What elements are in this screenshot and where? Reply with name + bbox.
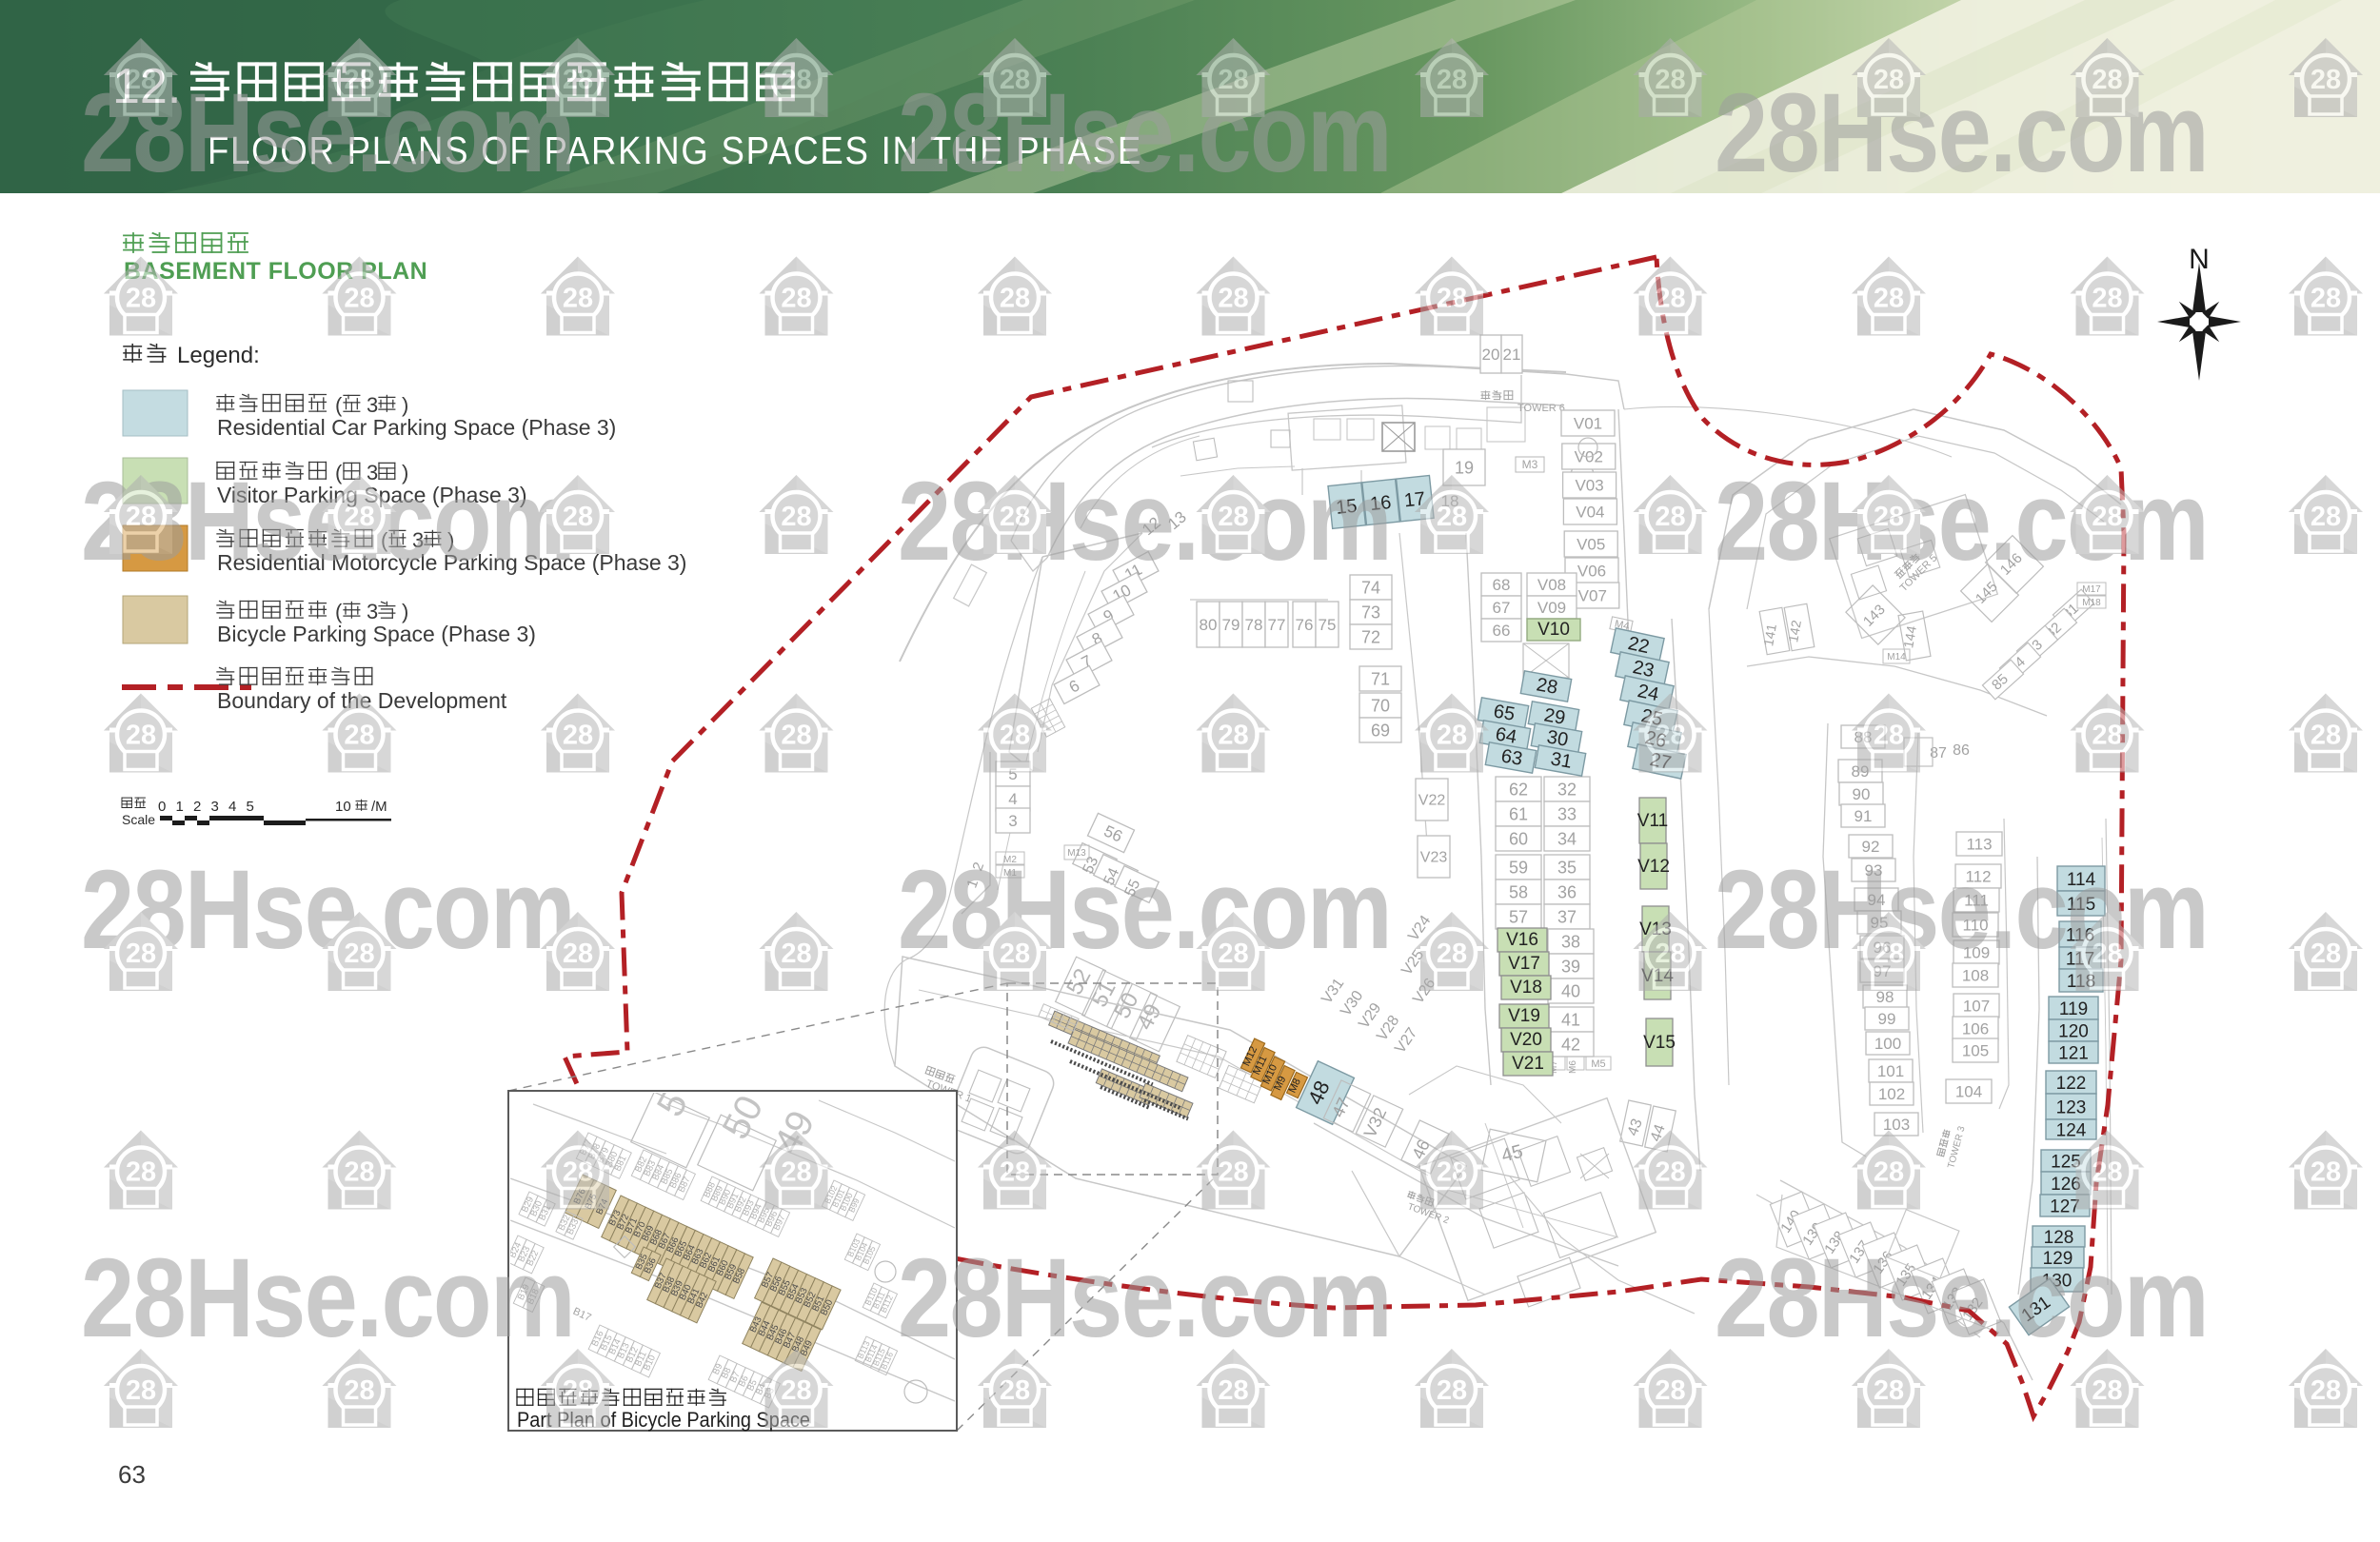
svg-text:M18: M18 (2082, 598, 2101, 608)
svg-text:67: 67 (1493, 599, 1511, 617)
svg-text:0 1 2 3 4 5: 0 1 2 3 4 5 (158, 799, 257, 815)
svg-text:31: 31 (1549, 748, 1574, 773)
svg-text:(: ( (335, 600, 343, 623)
svg-text:123: 123 (2056, 1098, 2087, 1118)
svg-text:28Hse.com: 28Hse.com (898, 70, 1391, 196)
svg-text:103: 103 (1883, 1116, 1910, 1134)
svg-text:V10: V10 (1537, 620, 1570, 640)
svg-text:41: 41 (1561, 1010, 1580, 1029)
svg-text:V15: V15 (1643, 1033, 1676, 1053)
svg-text:M17: M17 (2082, 584, 2101, 595)
svg-text:V04: V04 (1576, 504, 1604, 522)
svg-text:): ) (402, 393, 408, 417)
svg-text:143: 143 (1860, 602, 1889, 630)
svg-text:119: 119 (2059, 999, 2088, 1019)
svg-text:3: 3 (367, 393, 378, 417)
svg-text:V18: V18 (1510, 978, 1542, 998)
svg-text:28Hse.com: 28Hse.com (898, 847, 1391, 973)
svg-text:10: 10 (335, 799, 351, 815)
svg-text:102: 102 (1878, 1085, 1905, 1103)
svg-text:86: 86 (1953, 742, 1970, 759)
svg-text:(: ( (335, 393, 343, 417)
svg-text:36: 36 (1557, 882, 1577, 901)
svg-text:M6: M6 (1568, 1060, 1578, 1074)
svg-text:37: 37 (1557, 907, 1577, 926)
svg-text:59: 59 (1509, 858, 1528, 877)
svg-text:V17: V17 (1508, 954, 1540, 974)
svg-text:V32: V32 (1360, 1105, 1391, 1140)
svg-text:65: 65 (1492, 701, 1517, 725)
svg-text:33: 33 (1557, 804, 1577, 823)
svg-text:Residential Car Parking Space: Residential Car Parking Space (Phase 3) (217, 415, 616, 440)
svg-text:V21: V21 (1512, 1054, 1544, 1074)
svg-text:/M: /M (371, 799, 387, 815)
svg-text:35: 35 (1557, 858, 1577, 877)
svg-text:V06: V06 (1577, 563, 1606, 581)
svg-text:3: 3 (1008, 812, 1017, 830)
svg-text:144: 144 (1900, 624, 1919, 649)
svg-text:28Hse.com: 28Hse.com (1715, 1236, 2208, 1361)
svg-text:104: 104 (1955, 1083, 1982, 1101)
svg-text:105: 105 (1962, 1042, 1989, 1060)
svg-text:40: 40 (1561, 981, 1580, 1000)
svg-text:80: 80 (1200, 616, 1218, 634)
svg-text:75: 75 (1319, 616, 1337, 634)
svg-text:V22: V22 (1418, 793, 1446, 809)
svg-text:66: 66 (1493, 622, 1511, 640)
svg-text:57: 57 (1509, 907, 1528, 926)
svg-text:V11: V11 (1637, 811, 1668, 831)
svg-text:63: 63 (1499, 745, 1524, 770)
svg-text:61: 61 (1509, 804, 1528, 823)
svg-text:70: 70 (1371, 696, 1390, 715)
svg-text:V12: V12 (1637, 857, 1670, 877)
svg-text:V07: V07 (1578, 587, 1607, 605)
svg-text:V20: V20 (1510, 1030, 1542, 1050)
svg-text:3: 3 (367, 600, 378, 623)
svg-text:4: 4 (1008, 790, 1017, 808)
svg-text:121: 121 (2058, 1044, 2089, 1064)
svg-text:28: 28 (1535, 674, 1559, 699)
svg-text:90: 90 (1853, 785, 1871, 803)
svg-text:28Hse.com: 28Hse.com (898, 1236, 1391, 1361)
svg-text:21: 21 (1503, 346, 1521, 364)
svg-text:141: 141 (1760, 623, 1779, 647)
svg-text:Legend:: Legend: (177, 343, 260, 368)
svg-text:120: 120 (2058, 1022, 2089, 1042)
svg-text:107: 107 (1963, 998, 1990, 1016)
svg-text:68: 68 (1493, 576, 1511, 594)
svg-text:V03: V03 (1575, 477, 1603, 495)
svg-text:142: 142 (1785, 619, 1804, 643)
svg-text:34: 34 (1557, 829, 1577, 848)
svg-text:124: 124 (2056, 1121, 2087, 1141)
svg-text:100: 100 (1874, 1035, 1901, 1053)
svg-text:71: 71 (1371, 669, 1390, 688)
svg-text:28Hse.com: 28Hse.com (898, 459, 1391, 584)
svg-text:122: 122 (2056, 1074, 2087, 1094)
svg-text:77: 77 (1268, 616, 1286, 634)
svg-text:32: 32 (1557, 780, 1577, 799)
svg-text:28Hse.com: 28Hse.com (81, 1236, 574, 1361)
svg-text:): ) (402, 600, 408, 623)
svg-text:42: 42 (1561, 1035, 1580, 1054)
svg-text:V01: V01 (1574, 414, 1602, 432)
svg-text:101: 101 (1877, 1062, 1904, 1080)
svg-text:72: 72 (1361, 627, 1380, 646)
svg-text:99: 99 (1878, 1010, 1896, 1028)
svg-text:M3: M3 (1522, 458, 1538, 471)
svg-text:43: 43 (1625, 1117, 1646, 1138)
svg-text:79: 79 (1222, 616, 1240, 634)
svg-text:58: 58 (1509, 882, 1528, 901)
svg-text:63: 63 (118, 1460, 146, 1489)
svg-text:39: 39 (1561, 957, 1580, 976)
svg-text:TOWER 6: TOWER 6 (1517, 403, 1565, 414)
svg-text:M14: M14 (1887, 652, 1906, 662)
svg-text:62: 62 (1509, 780, 1528, 799)
svg-text:M5: M5 (1591, 1058, 1605, 1070)
svg-text:127: 127 (2050, 1197, 2080, 1217)
svg-text:69: 69 (1371, 721, 1390, 740)
svg-text:V23: V23 (1420, 850, 1448, 866)
svg-text:V08: V08 (1537, 576, 1566, 594)
svg-text:19: 19 (1455, 458, 1474, 477)
svg-text:60: 60 (1509, 829, 1528, 848)
svg-text:45: 45 (1499, 1141, 1525, 1167)
svg-text:76: 76 (1296, 616, 1314, 634)
svg-text:106: 106 (1962, 1020, 1989, 1038)
svg-text:20: 20 (1482, 346, 1500, 364)
svg-text:38: 38 (1561, 932, 1580, 951)
svg-text:73: 73 (1361, 603, 1380, 622)
svg-text:24: 24 (1636, 681, 1660, 705)
svg-text:V16: V16 (1506, 930, 1538, 950)
svg-text:V09: V09 (1537, 599, 1566, 617)
svg-text:Scale: Scale (122, 812, 155, 827)
svg-text:91: 91 (1854, 807, 1873, 825)
svg-text:V19: V19 (1508, 1006, 1540, 1026)
svg-text:Bicycle Parking Space (Phase 3: Bicycle Parking Space (Phase 3) (217, 622, 536, 646)
svg-text:78: 78 (1245, 616, 1263, 634)
svg-text:V05: V05 (1577, 536, 1605, 554)
